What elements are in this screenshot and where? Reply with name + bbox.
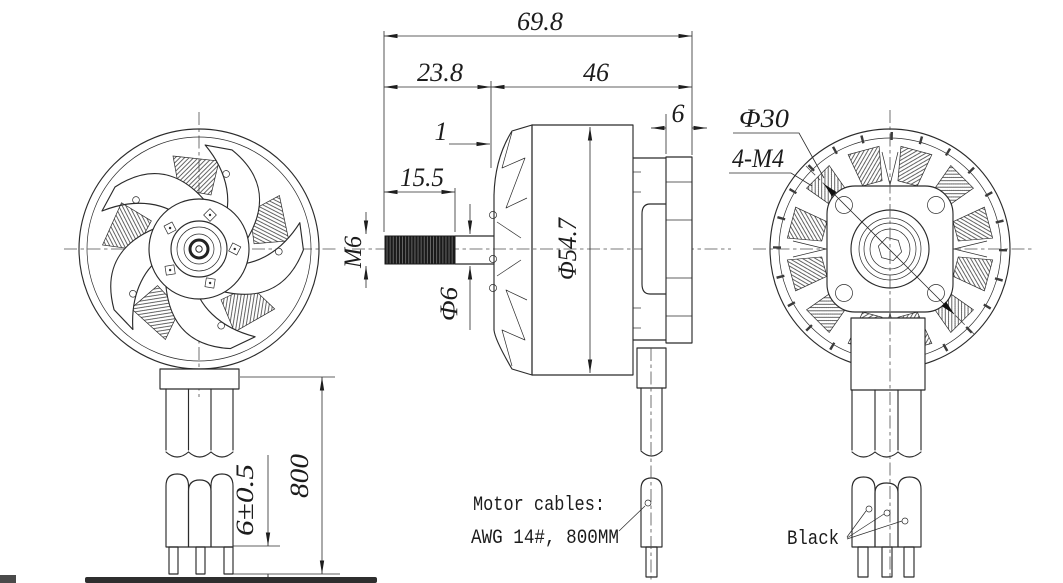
rotor-bell-profile — [494, 125, 532, 375]
side-view-cable — [637, 348, 666, 580]
bare-wire-tip — [224, 547, 233, 574]
dim-body-length-text: 46 — [583, 58, 609, 87]
dim-shaft-section-text: 23.8 — [417, 58, 463, 87]
dim-thread-length-text: 15.5 — [400, 163, 444, 192]
cable-collar — [637, 348, 666, 388]
dimension-body-diameter: Φ54.7 — [553, 127, 590, 373]
bottom-corner-artifact — [0, 575, 16, 583]
bottom-border-artifact — [85, 577, 377, 583]
front-view: 6±0.5 800 — [64, 112, 340, 583]
cable-leader-dot — [645, 500, 651, 506]
wire-leader-dot — [866, 506, 872, 512]
drawing-canvas: 6±0.5 800 — [0, 0, 1063, 583]
dimension-overall-length: 69.8 — [384, 7, 692, 232]
dim-overall-length-text: 69.8 — [517, 7, 563, 36]
dimension-shoulder-gap: 1 — [435, 117, 491, 146]
dim-shoulder-gap-text: 1 — [435, 117, 448, 146]
bell-screw — [489, 211, 496, 218]
bell-screw — [489, 284, 496, 291]
bare-wire-tip — [882, 547, 892, 577]
bolt-circle-text: Φ30 — [739, 104, 789, 133]
dim-stripped-wire-text: 6±0.5 — [232, 464, 259, 536]
bearing-boss — [642, 204, 666, 294]
motor-body — [532, 125, 633, 375]
dimension-flange-thickness: 6 — [651, 99, 707, 154]
bare-wire-tip — [646, 547, 657, 577]
dim-shaft-thread-text: M6 — [340, 236, 367, 269]
cable-note-line1: Motor cables: — [473, 494, 605, 517]
dimension-shaft-section: 23.8 — [384, 58, 491, 168]
mount-holes-text: 4-M4 — [732, 144, 784, 173]
wire-color-label: Black — [787, 528, 839, 551]
label-mount-holes: 4-M4 — [729, 144, 812, 186]
bare-wire-tip — [904, 547, 914, 577]
dim-cable-length-text: 800 — [285, 454, 314, 498]
cable-collar — [851, 318, 925, 390]
stator-and-flange — [633, 157, 692, 343]
cable-note-line2: AWG 14#, 800MM — [471, 527, 619, 550]
dim-shaft-diameter-text: Φ6 — [436, 286, 463, 321]
bare-wire-tip — [858, 547, 868, 577]
bare-wire-tip — [169, 547, 178, 574]
dimension-thread-length: 15.5 — [384, 163, 455, 232]
motor-technical-drawing: 6±0.5 800 — [0, 0, 1063, 583]
shaft — [455, 236, 494, 264]
dimension-shaft-diameter: Φ6 — [436, 204, 470, 330]
wire-leader-dot — [884, 510, 890, 516]
front-view-cables — [160, 369, 239, 574]
dimension-shaft-thread: M6 — [340, 212, 367, 288]
dim-body-diameter-text: Φ54.7 — [553, 217, 582, 280]
dim-flange-thickness-text: 6 — [672, 99, 685, 128]
mount-flange — [666, 157, 692, 343]
dimension-body-length: 46 — [491, 58, 692, 87]
rear-view: Φ30 4-M4 — [729, 104, 1034, 580]
threaded-shaft — [385, 236, 455, 264]
bell-screw — [489, 255, 496, 262]
bare-wire-tip — [196, 547, 205, 574]
cable-collar — [160, 369, 239, 389]
wire-leader-dot — [902, 518, 908, 524]
cable-note: Motor cables: AWG 14#, 800MM — [471, 494, 645, 550]
